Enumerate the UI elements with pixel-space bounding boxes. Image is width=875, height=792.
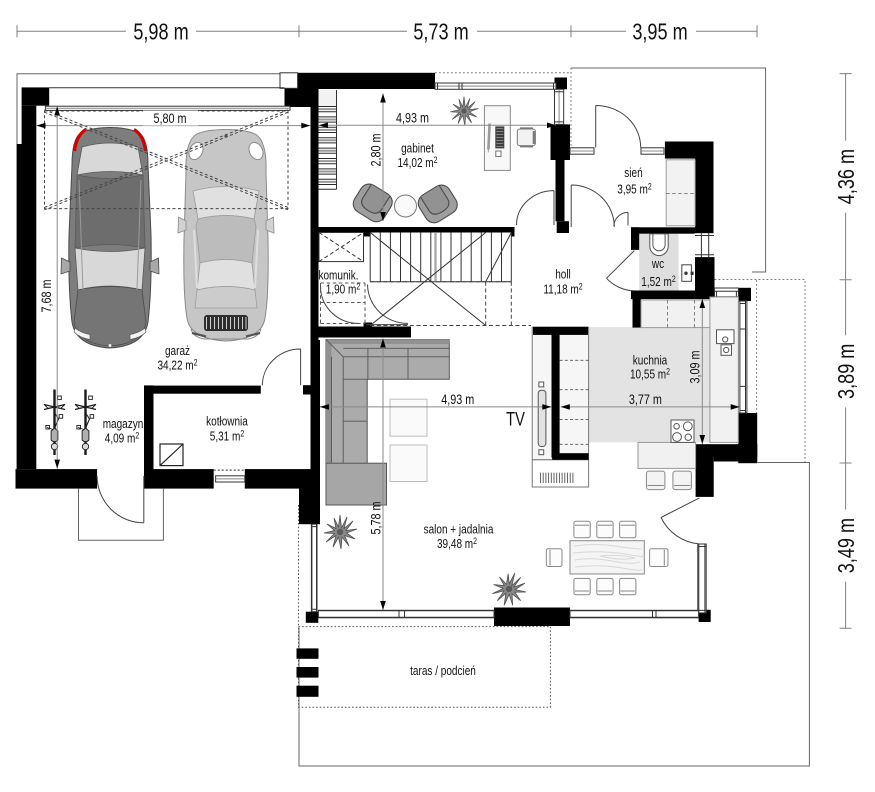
svg-text:4,93 m: 4,93 m xyxy=(441,391,474,407)
svg-text:5,80 m: 5,80 m xyxy=(154,110,187,126)
svg-text:11,18 m2: 11,18 m2 xyxy=(543,282,582,297)
svg-text:3,49 m: 3,49 m xyxy=(833,518,859,573)
svg-text:wc: wc xyxy=(651,256,664,271)
svg-text:gabinet: gabinet xyxy=(401,141,434,156)
svg-text:5,78 m: 5,78 m xyxy=(368,502,384,535)
svg-text:5,98 m: 5,98 m xyxy=(133,19,188,45)
svg-text:3,95 m2: 3,95 m2 xyxy=(617,182,652,197)
svg-text:5,73 m: 5,73 m xyxy=(413,19,468,45)
svg-text:14,02 m2: 14,02 m2 xyxy=(398,155,438,170)
svg-text:kuchnia: kuchnia xyxy=(633,353,668,368)
svg-text:3,09 m: 3,09 m xyxy=(687,351,703,384)
svg-text:komunik.: komunik. xyxy=(318,268,358,283)
svg-text:34,22 m2: 34,22 m2 xyxy=(158,358,198,373)
svg-text:4,93 m: 4,93 m xyxy=(396,110,429,126)
svg-text:7,68 m: 7,68 m xyxy=(38,280,54,313)
svg-text:5,31 m2: 5,31 m2 xyxy=(210,429,245,444)
svg-text:1,90 m2: 1,90 m2 xyxy=(326,282,361,297)
svg-text:4,09 m2: 4,09 m2 xyxy=(105,431,140,446)
svg-text:3,89 m: 3,89 m xyxy=(833,344,859,399)
svg-text:39,48 m2: 39,48 m2 xyxy=(437,536,477,551)
svg-text:sień: sień xyxy=(624,165,642,180)
svg-text:2,80 m: 2,80 m xyxy=(368,134,384,167)
svg-text:4,36 m: 4,36 m xyxy=(833,149,859,204)
svg-text:kotłownia: kotłownia xyxy=(206,414,248,429)
svg-text:holl: holl xyxy=(555,267,571,282)
svg-text:10,55 m2: 10,55 m2 xyxy=(630,367,670,382)
svg-text:magazyn: magazyn xyxy=(103,416,144,431)
svg-text:garaż: garaż xyxy=(165,343,190,358)
svg-text:salon + jadalnia: salon + jadalnia xyxy=(424,522,494,537)
svg-text:taras / podcień: taras / podcień xyxy=(410,663,476,678)
svg-text:TV: TV xyxy=(506,410,525,431)
svg-text:3,77 m: 3,77 m xyxy=(629,391,662,407)
svg-text:1,52 m2: 1,52 m2 xyxy=(641,274,676,289)
svg-text:3,95 m: 3,95 m xyxy=(632,19,687,45)
